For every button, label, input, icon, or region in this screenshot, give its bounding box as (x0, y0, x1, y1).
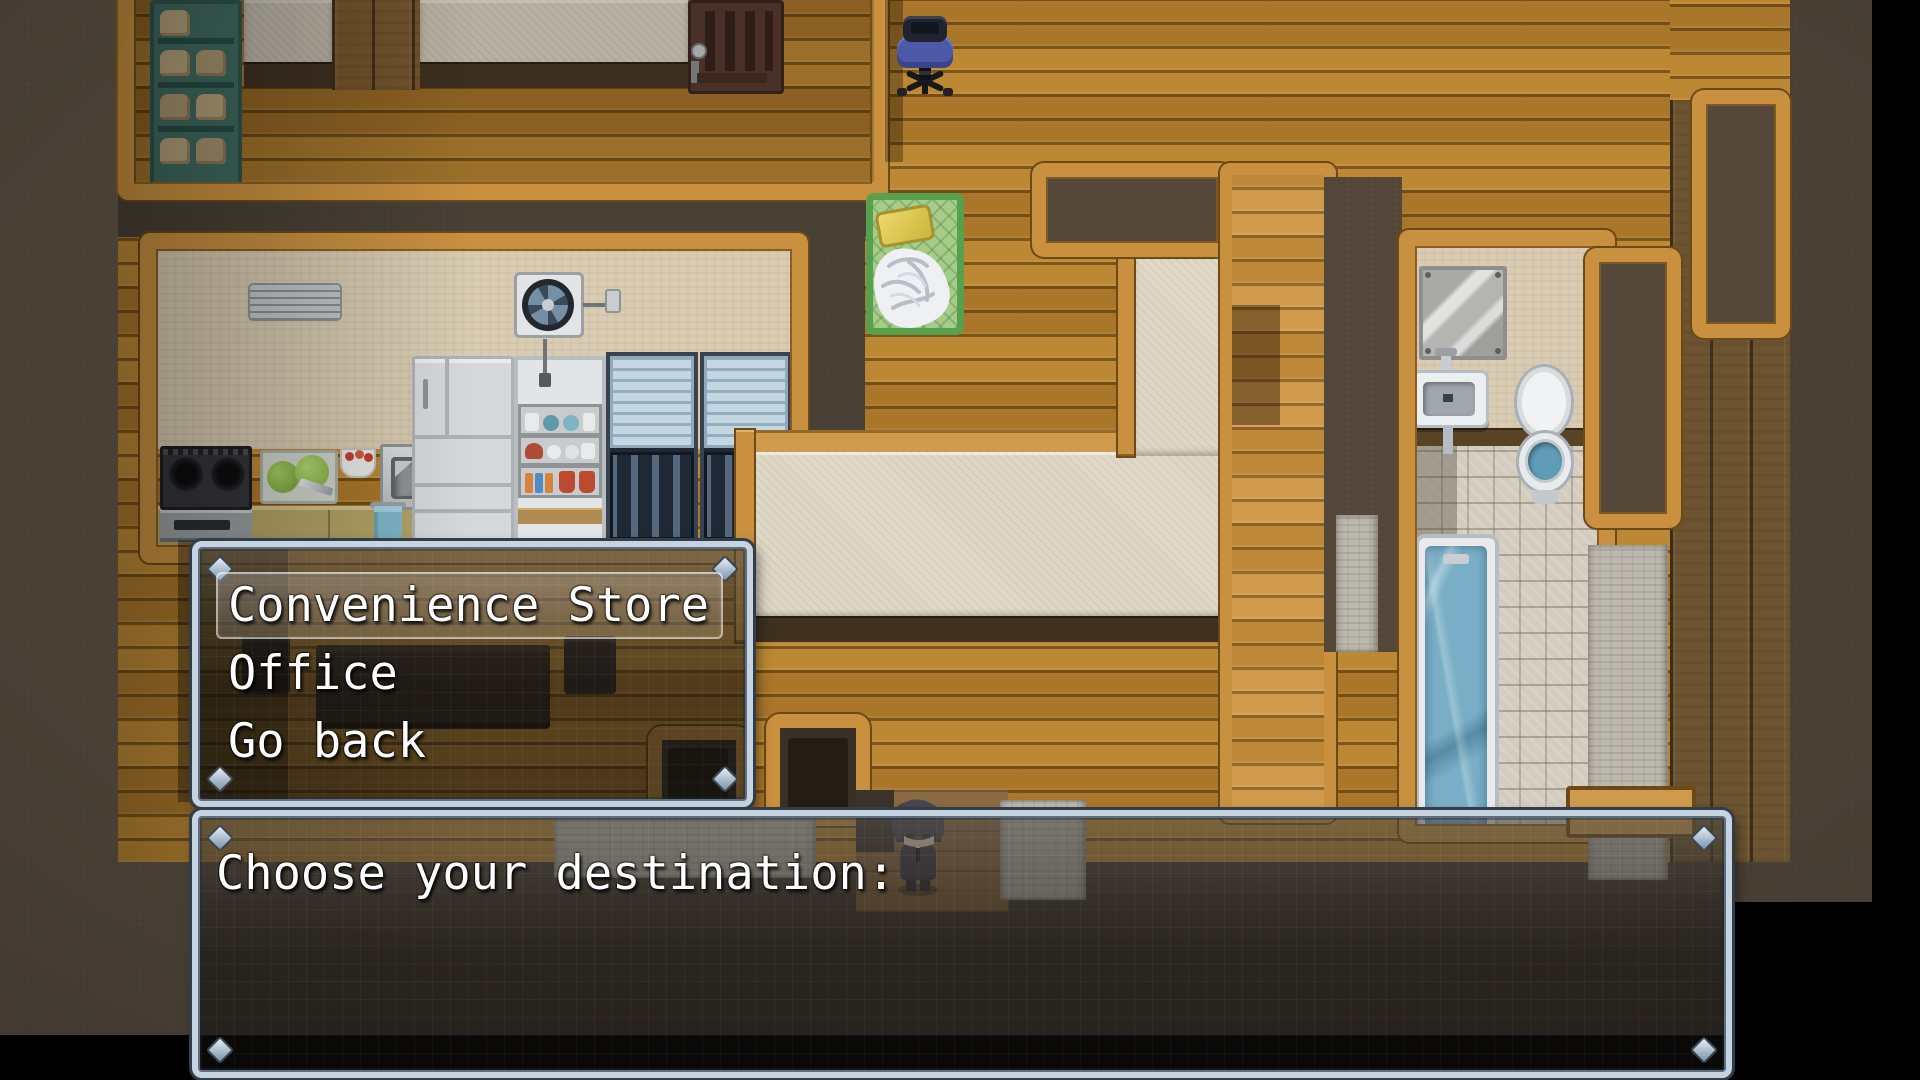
message-window: Choose your destination: (192, 810, 1732, 1078)
choice-option-go-back[interactable]: Go back (228, 708, 426, 776)
choice-option-convenience-store[interactable]: Convenience Store (228, 572, 709, 640)
corner-gem-icon (1690, 824, 1718, 852)
corner-gem-icon (711, 765, 739, 793)
choice-option-office[interactable]: Office (228, 640, 398, 708)
choice-window: Convenience Store Office Go back (192, 541, 753, 807)
corner-gem-icon (206, 1036, 234, 1064)
message-text: Choose your destination: (216, 840, 895, 908)
corner-gem-icon (1690, 1036, 1718, 1064)
game-screen: Convenience Store Office Go back Choose … (0, 0, 1920, 1080)
